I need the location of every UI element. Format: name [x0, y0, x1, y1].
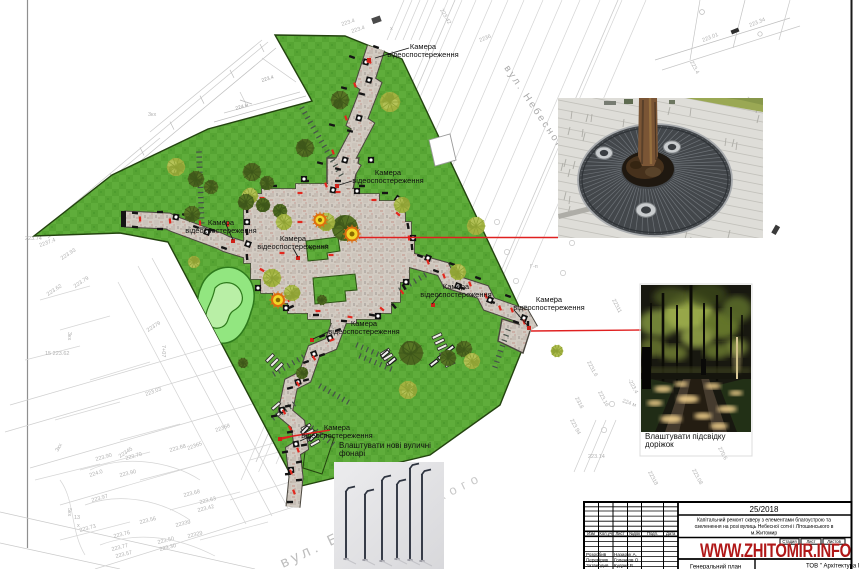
svg-text:Генеральний план: Генеральний план [690, 564, 741, 569]
svg-text:Капітальний ремонт скверу з ел: Капітальний ремонт скверу з елементами б… [697, 517, 831, 524]
svg-text:Кудрик В.: Кудрик В. [614, 563, 634, 568]
svg-text:Изм: Изм [587, 531, 595, 536]
svg-text:озеленення на розі вулиць Небе: озеленення на розі вулиць Небесної сотні… [695, 524, 834, 530]
svg-text:Подп.: Подп. [647, 531, 658, 536]
svg-text:Дата: Дата [666, 531, 676, 536]
svg-text:Назарук А.: Назарук А. [614, 552, 637, 557]
svg-text:Лист: Лист [615, 531, 624, 536]
svg-text:Затвердив: Затвердив [586, 563, 609, 568]
svg-text:№док: №док [629, 531, 640, 536]
svg-text:25/2018: 25/2018 [750, 505, 779, 514]
svg-text:Кол.уч: Кол.уч [599, 531, 612, 536]
svg-text:Голенков О: Голенков О [614, 558, 639, 563]
svg-text:ТОВ " Архітектура Плюс: ТОВ " Архітектура Плюс [806, 564, 859, 569]
svg-text:Розробив: Розробив [586, 552, 607, 557]
svg-text:м.Житомир: м.Житомир [751, 531, 777, 537]
svg-text:Перевірив: Перевірив [586, 558, 609, 563]
